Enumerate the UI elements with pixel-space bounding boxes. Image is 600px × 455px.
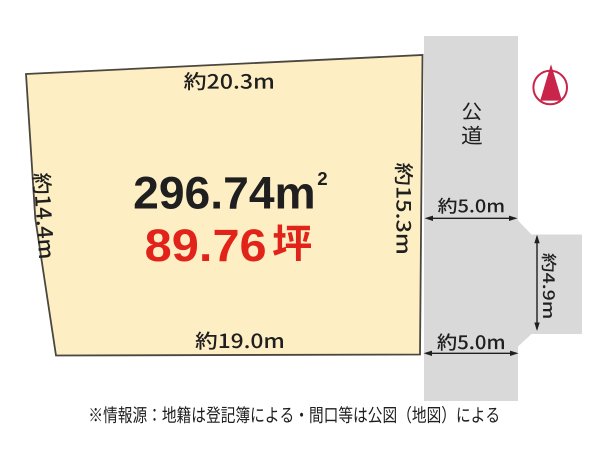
svg-text:89.76: 89.76	[145, 220, 267, 271]
svg-text:296.74m: 296.74m	[133, 167, 316, 218]
svg-text:2: 2	[317, 168, 327, 189]
